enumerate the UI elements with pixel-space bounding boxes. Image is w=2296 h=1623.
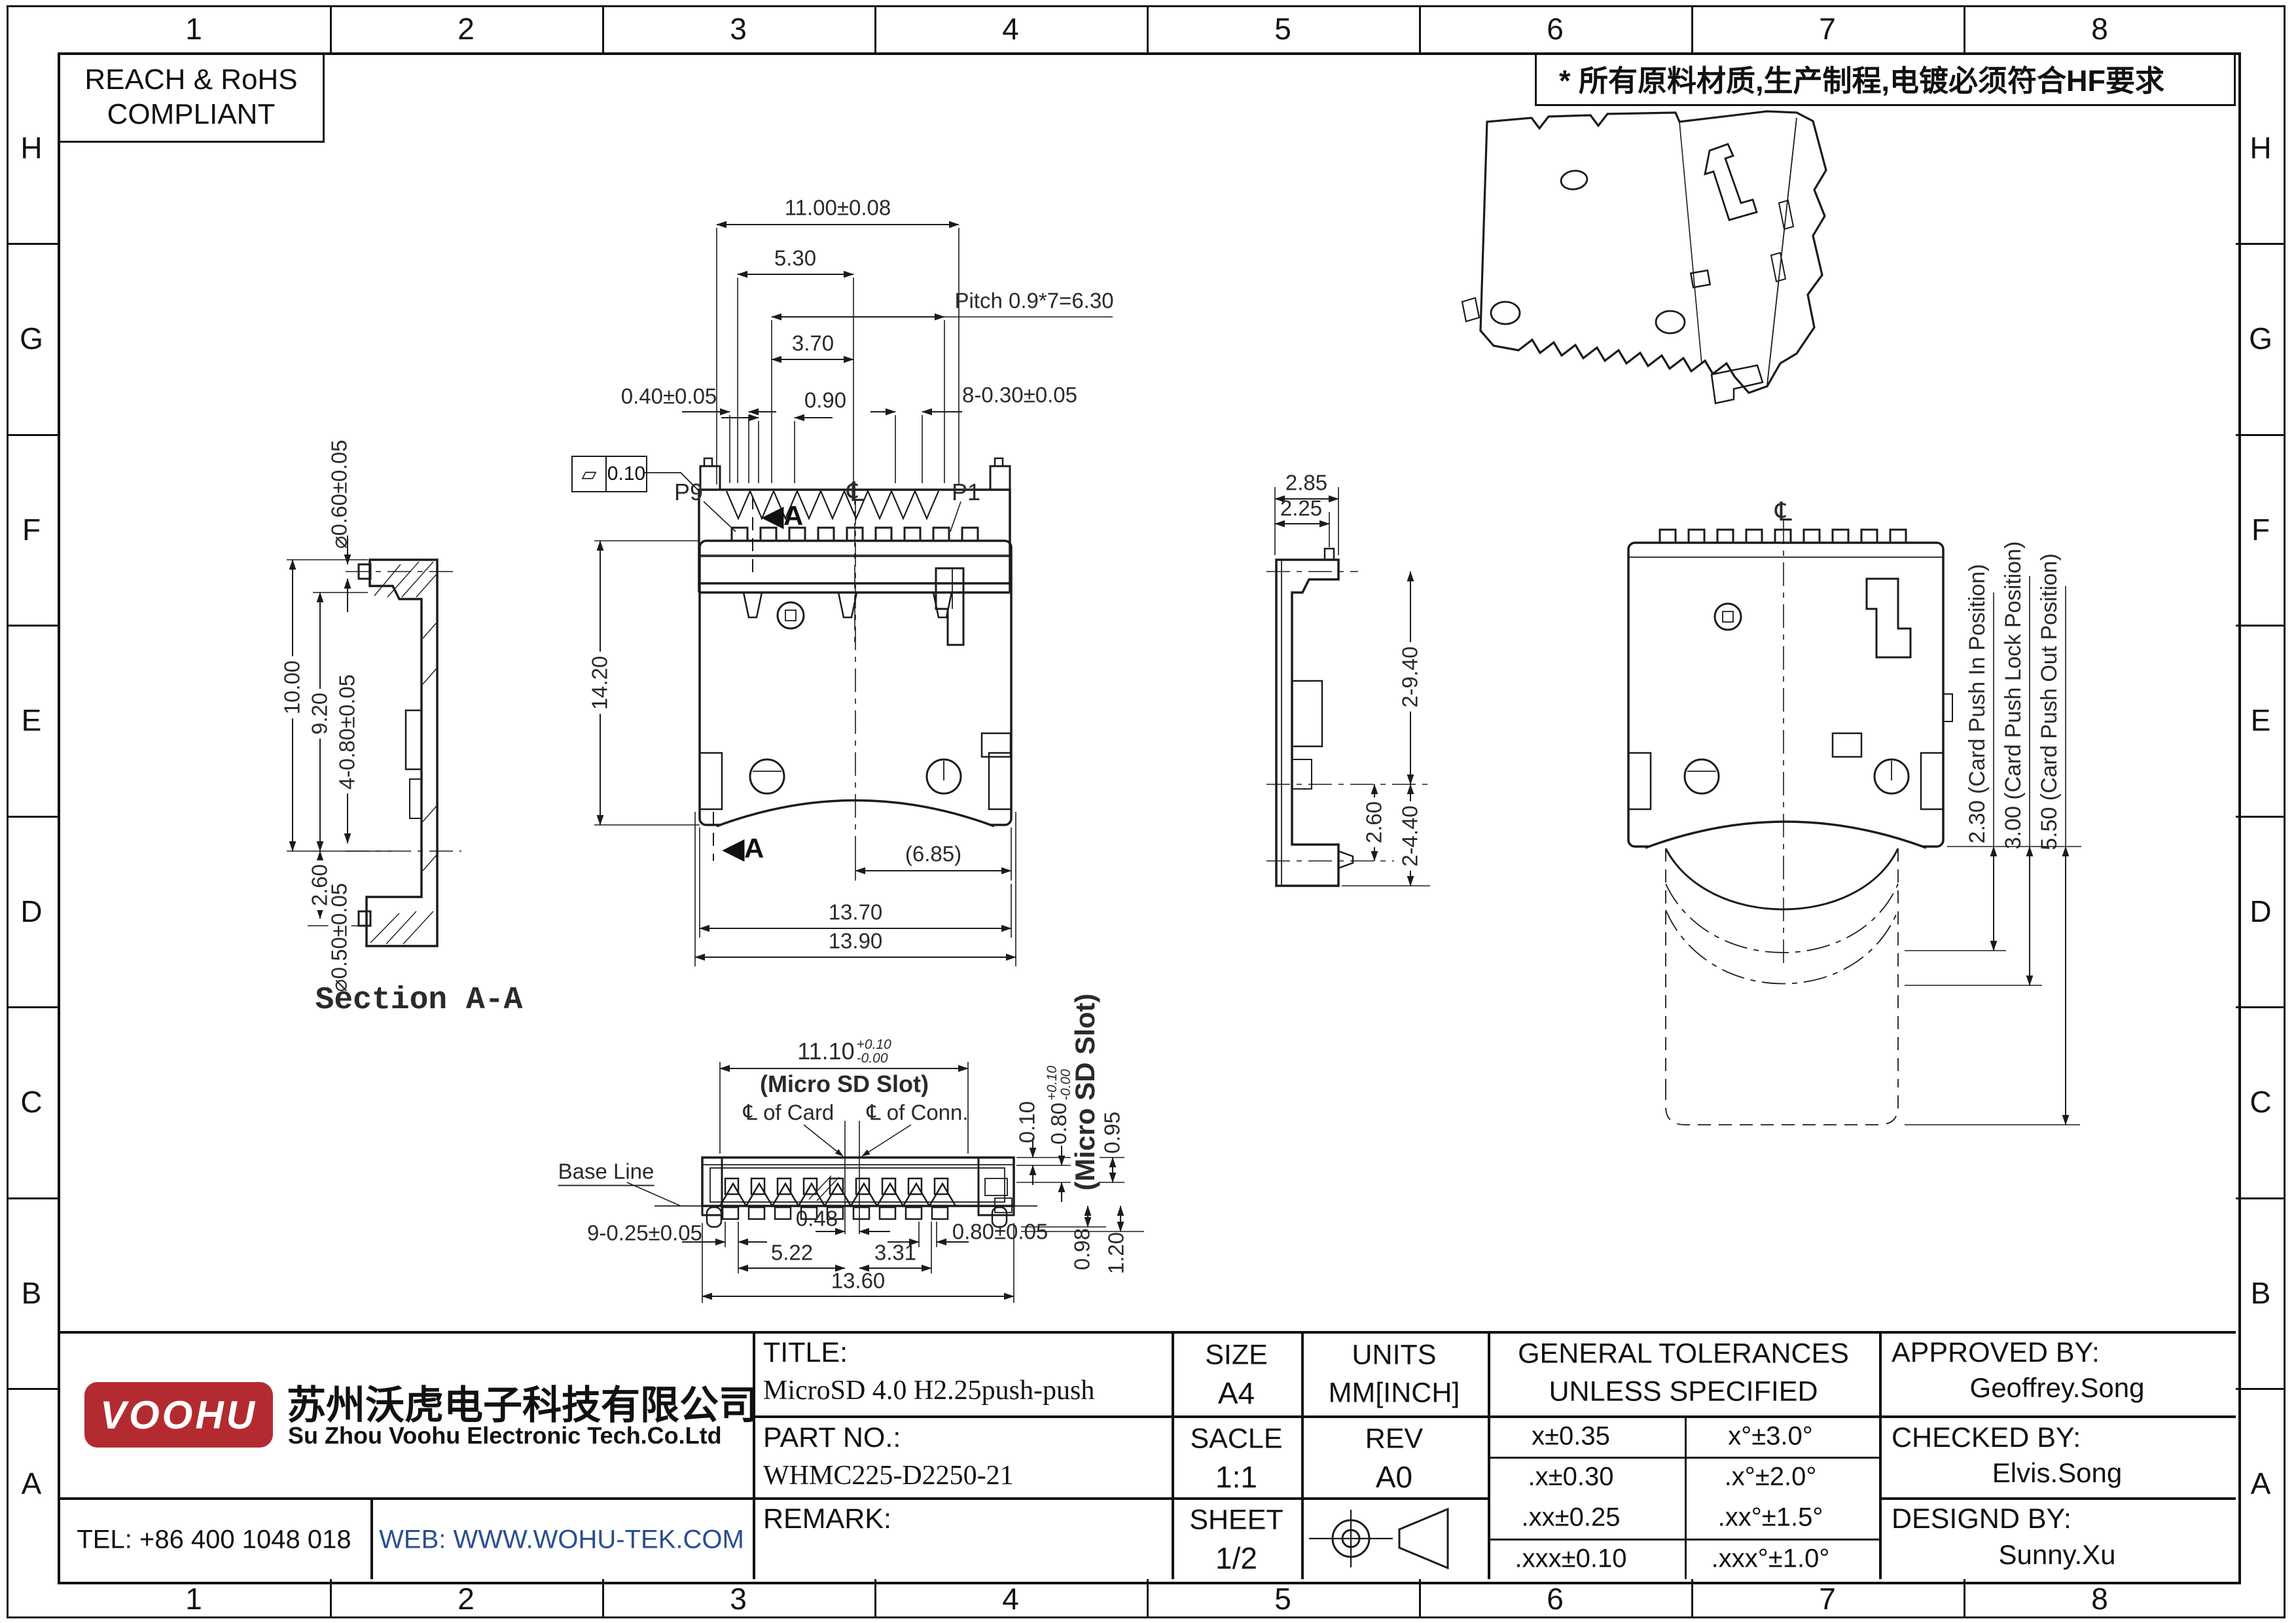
front-view (644, 225, 1113, 645)
size-value: A4 (1218, 1376, 1255, 1411)
titleblock-line (1879, 1331, 1882, 1579)
section-caption: Section A-A (315, 984, 523, 1017)
logo-text: VOOHU (100, 1393, 257, 1438)
titleblock-line (1301, 1331, 1304, 1579)
titleblock-line (753, 1415, 1882, 1418)
section-letter: A (744, 833, 764, 864)
titleblock-line (753, 1331, 755, 1579)
units-label: UNITS (1352, 1340, 1437, 1372)
dim-section-1000: 10.00 (281, 657, 304, 719)
pin-label-p9: P9 (674, 480, 703, 505)
dim-bottom-slot-height: 0.80+0.10-0.00 (1045, 1066, 1073, 1144)
titleblock-line (1879, 1415, 2236, 1418)
slot-height-value: 0.80 (1048, 1103, 1071, 1144)
card-push-in-label: 2.30 (Card Push In Position) (1966, 564, 1990, 843)
dim-bottom-120: 1.20 (1105, 1232, 1128, 1274)
approved-by-label: APPROVED BY: (1892, 1337, 2100, 1369)
dim-bottom-total: 13.60 (831, 1270, 886, 1293)
size-label: SIZE (1205, 1340, 1268, 1372)
tol-x: x±0.35 (1532, 1422, 1610, 1451)
rev-value: A0 (1376, 1459, 1412, 1495)
slot-width-value: 11.10 (797, 1039, 854, 1064)
dim-bottom-080: 0.80±0.05 (952, 1221, 1049, 1244)
dim-front-040: 0.40±0.05 (621, 386, 717, 409)
dim-bottom-522: 5.22 (771, 1242, 813, 1265)
isometric-view (1462, 111, 1826, 403)
tolerance-header-2: UNLESS SPECIFIED (1549, 1376, 1818, 1408)
titleblock-line (1685, 1415, 1687, 1579)
sheet-label: SHEET (1189, 1504, 1283, 1537)
dim-bottom-095: 0.95 (1102, 1112, 1124, 1154)
card-push-out-label: 5.50 (Card Push Out Position) (2038, 553, 2062, 850)
dim-section-pin: 4-0.80±0.05 (336, 670, 359, 793)
dim-bottom-slot-width: 11.10+0.10-0.00 (797, 1038, 891, 1065)
dim-front-pitch: Pitch 0.9*7=6.30 (954, 290, 1113, 313)
cl-of-card-label: ℄ of Card (744, 1102, 834, 1125)
web-link[interactable]: WEB: WWW.WOHU-TEK.COM (379, 1525, 744, 1555)
titleblock-line (1488, 1331, 1490, 1579)
dim-section-920: 9.20 (309, 689, 332, 739)
slot-note: (Micro SD Slot) (760, 1072, 929, 1097)
drawing-sheet: 1 2 3 4 5 6 7 8 1 2 3 4 5 6 7 8 H G F E … (0, 0, 2296, 1623)
card-push-lock-label: 3.00 (Card Push Lock Position) (2002, 541, 2026, 850)
main-view (594, 496, 1016, 966)
centerline-symbol: ℄ (1775, 498, 1792, 526)
dim-side-285: 2.85 (1285, 472, 1327, 495)
slot-note-vertical: (Micro SD Slot) (1071, 990, 1100, 1195)
remark-label: REMARK: (763, 1503, 891, 1535)
sheet-value: 1/2 (1215, 1541, 1257, 1576)
dim-front-total-width: 11.00±0.08 (785, 197, 891, 220)
rev-label: REV (1365, 1423, 1423, 1455)
part-no-value: WHMC225-D2250-21 (763, 1460, 1014, 1491)
part-no-label: PART NO.: (763, 1422, 901, 1454)
company-name-en: Su Zhou Voohu Electronic Tech.Co.Ltd (288, 1422, 722, 1450)
scale-value: 1:1 (1215, 1459, 1257, 1495)
dim-bottom-010: 0.10 (1016, 1101, 1039, 1143)
dim-section-dia-top: ⌀0.60±0.05 (329, 440, 351, 549)
dim-bottom-pads: 9-0.25±0.05 (587, 1222, 702, 1245)
cl-of-conn-label: ℄ of Conn. (867, 1102, 968, 1125)
flatness-icon: ▱ (573, 457, 607, 491)
projection-symbol (1309, 1509, 1448, 1568)
titleblock-line (1488, 1539, 1879, 1541)
units-value: MM[INCH] (1329, 1377, 1460, 1410)
tol-2x: .xx±0.25 (1522, 1503, 1621, 1533)
designed-by-label: DESIGND BY: (1892, 1503, 2072, 1535)
dim-side-940: 2-9.40 (1399, 642, 1422, 712)
flatness-control-frame: ▱ 0.10 (571, 456, 647, 492)
dim-front-530: 5.30 (774, 247, 816, 270)
titleblock-line (58, 1331, 2236, 1334)
dim-main-height: 14.20 (589, 652, 612, 714)
titleblock-line (1879, 1497, 2236, 1500)
tol-upper: +0.10 (857, 1038, 891, 1051)
titleblock-line (370, 1497, 373, 1579)
dim-bottom-331: 3.31 (874, 1242, 916, 1265)
section-arrow-icon: ◀ (762, 500, 783, 531)
dim-bottom-098: 0.98 (1071, 1228, 1094, 1270)
scale-label: SACLE (1190, 1423, 1282, 1455)
tol-lower: -0.00 (857, 1051, 891, 1065)
section-marker-top: ◀A (762, 501, 804, 530)
tol-1xdeg: .x°±2.0° (1725, 1463, 1817, 1492)
dim-front-370: 3.70 (792, 333, 834, 356)
tol-xdeg: x°±3.0° (1728, 1422, 1813, 1451)
titleblock-line (1172, 1331, 1174, 1579)
centerline-symbol: ℄ (847, 479, 864, 506)
section-marker-bottom: ◀A (723, 834, 764, 863)
dim-side-225: 2.25 (1280, 498, 1322, 520)
flatness-value: 0.10 (607, 457, 646, 491)
dim-main-1390: 13.90 (829, 930, 883, 953)
dim-section-dia-bot: ⌀0.50±0.05 (329, 879, 351, 996)
dim-front-090: 0.90 (804, 390, 846, 412)
title-label: TITLE: (763, 1337, 848, 1369)
designed-by-value: Sunny.Xu (1998, 1539, 2115, 1571)
dim-bottom-048: 0.48 (796, 1208, 838, 1231)
tol-upper: +0.10 (1045, 1066, 1059, 1101)
dim-side-260: 2.60 (1363, 797, 1386, 847)
approved-by-value: Geoffrey.Song (1970, 1372, 2145, 1404)
pin-label-p1: P1 (952, 480, 980, 505)
checked-by-value: Elvis.Song (1992, 1457, 2122, 1489)
titleblock-line (58, 1497, 1489, 1500)
dim-main-1370: 13.70 (829, 902, 883, 924)
tol-2xdeg: .xx°±1.5° (1718, 1503, 1823, 1533)
tol-1x: .x±0.30 (1528, 1463, 1614, 1492)
dim-main-685: (6.85) (905, 843, 961, 866)
section-arrow-icon: ◀ (723, 833, 744, 864)
dim-front-pin-width: 8-0.30±0.05 (962, 384, 1077, 407)
tol-3x: .xxx±0.10 (1515, 1544, 1627, 1574)
title-value: MicroSD 4.0 H2.25push-push (763, 1375, 1094, 1406)
company-logo: VOOHU (84, 1382, 273, 1448)
base-line-label: Base Line (558, 1161, 655, 1186)
section-letter: A (783, 500, 803, 531)
titleblock-line (1488, 1457, 1879, 1459)
dim-side-440: 2-4.40 (1399, 801, 1422, 871)
tol-3xdeg: .xxx°±1.0° (1712, 1544, 1830, 1574)
checked-by-label: CHECKED BY: (1892, 1422, 2081, 1454)
tel-value: TEL: +86 400 1048 018 (77, 1525, 351, 1555)
tolerance-header-1: GENERAL TOLERANCES (1518, 1338, 1849, 1370)
